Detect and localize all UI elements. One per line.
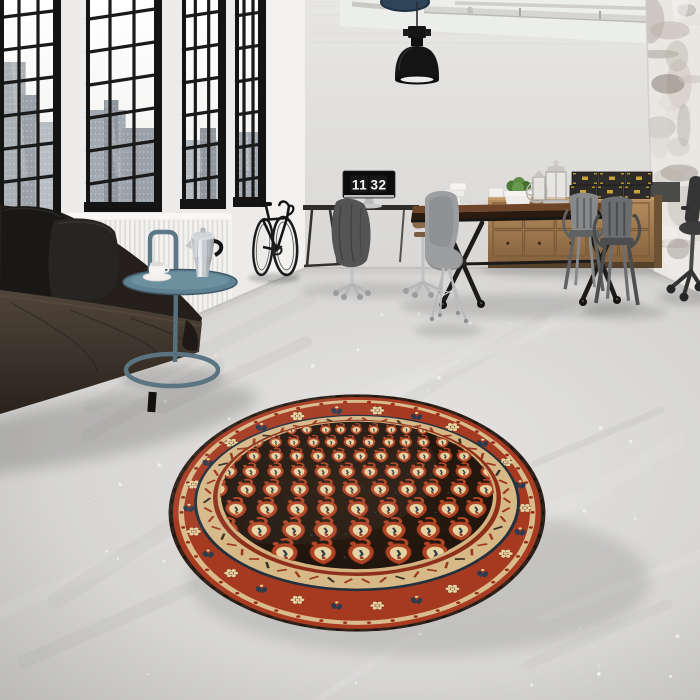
blue-duct-fan (381, 0, 429, 11)
window-bay (233, 0, 266, 207)
scene-canvas: 11 32 (0, 0, 700, 700)
coat-on-chair (332, 198, 371, 267)
loft-room-photo: 11 32 (0, 0, 700, 700)
clock-hours: 11 (352, 178, 367, 193)
sofa-pillow-mid (48, 218, 119, 301)
window-bay (0, 0, 61, 220)
clock-minutes: 32 (370, 178, 386, 193)
sofa-leg (147, 392, 156, 413)
window-bay (84, 0, 162, 212)
window-bay (180, 0, 226, 209)
folded-papers (489, 188, 503, 197)
